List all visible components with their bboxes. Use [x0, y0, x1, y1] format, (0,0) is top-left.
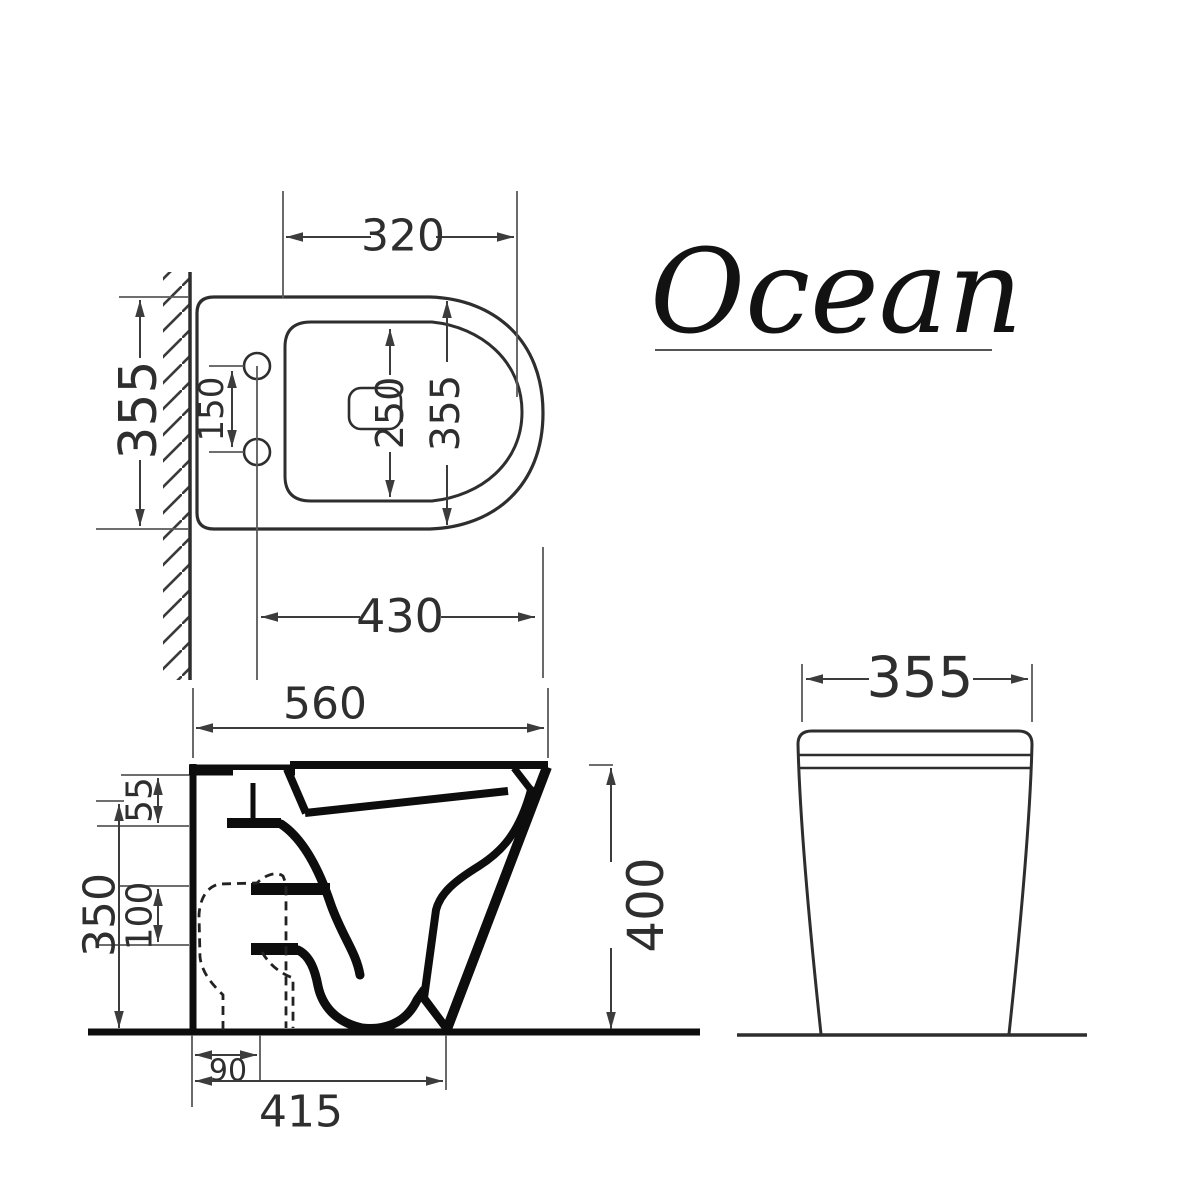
svg-text:415: 415 — [259, 1087, 343, 1138]
dim-250: 250 — [368, 329, 412, 497]
technical-drawing-page: Ocean 320 — [0, 0, 1200, 1200]
side-pocket-right — [287, 769, 306, 813]
title-block: Ocean — [650, 225, 1023, 360]
side-view: 560 55 100 350 400 — [75, 679, 701, 1138]
side-rim-hook — [514, 768, 531, 790]
svg-text:250: 250 — [368, 377, 412, 450]
dim-355-front: 355 — [802, 646, 1032, 723]
wall-hatching — [163, 272, 191, 680]
dim-355-seat: 355 — [423, 301, 469, 525]
svg-text:560: 560 — [283, 679, 367, 730]
svg-text:400: 400 — [617, 857, 675, 952]
side-rim-channel — [305, 791, 508, 813]
svg-text:350: 350 — [75, 873, 126, 957]
svg-text:100: 100 — [120, 882, 161, 951]
side-foot-edge — [421, 995, 447, 1029]
dim-150: 150 — [192, 371, 232, 447]
front-view: 355 — [737, 646, 1087, 1036]
front-body-outline — [798, 731, 1032, 1034]
trap-hidden-bend — [262, 952, 293, 1028]
svg-text:355: 355 — [423, 375, 469, 451]
dim-320: 320 — [283, 191, 517, 397]
dim-560: 560 — [193, 679, 548, 759]
side-top-slot — [233, 770, 287, 777]
dim-350: 350 — [75, 801, 126, 1028]
dim-400: 400 — [589, 765, 675, 1029]
side-front-inner — [424, 790, 531, 1029]
toilet-dimension-drawing: Ocean 320 — [0, 0, 1200, 1200]
dim-90: 90 — [192, 1035, 260, 1107]
svg-text:320: 320 — [361, 211, 445, 262]
svg-text:430: 430 — [356, 589, 444, 643]
svg-text:90: 90 — [209, 1054, 247, 1089]
svg-text:55: 55 — [120, 777, 161, 823]
dim-430: 430 — [261, 547, 543, 678]
svg-text:150: 150 — [192, 377, 232, 442]
product-title: Ocean — [650, 225, 1023, 360]
side-front-outer — [447, 767, 547, 1029]
plan-view: 320 355 150 250 355 — [96, 191, 543, 680]
svg-text:355: 355 — [867, 646, 974, 711]
svg-text:355: 355 — [109, 360, 169, 459]
